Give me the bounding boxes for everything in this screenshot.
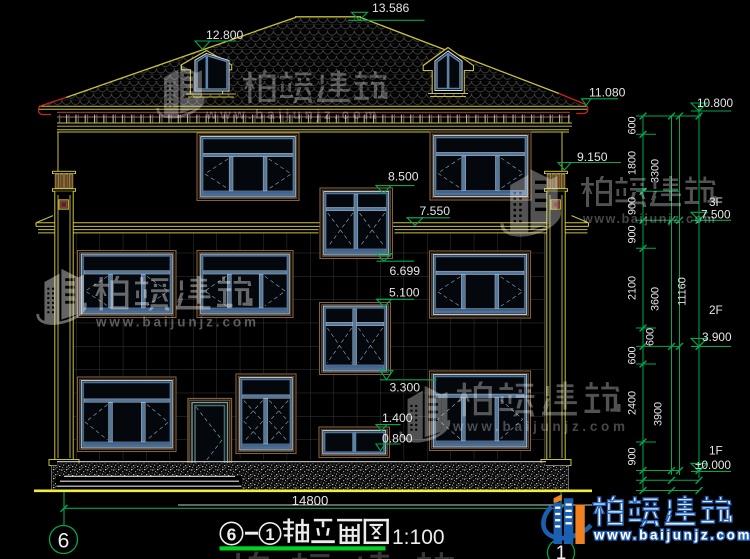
svg-text:6: 6 [227, 525, 237, 545]
svg-text:2400: 2400 [627, 391, 639, 415]
svg-text:900: 900 [627, 447, 639, 465]
svg-text:1: 1 [556, 543, 567, 559]
svg-text:11160: 11160 [677, 277, 689, 305]
svg-text:1: 1 [265, 526, 274, 544]
svg-text:3600: 3600 [650, 287, 662, 311]
svg-text:3.900: 3.900 [702, 330, 732, 344]
svg-text:www.baijunjz.com: www.baijunjz.com [593, 528, 750, 543]
svg-text:8.500: 8.500 [388, 170, 419, 184]
svg-text:9.150: 9.150 [577, 150, 608, 164]
svg-text:www.baijunjz.com: www.baijunjz.com [205, 107, 380, 122]
svg-text:7.550: 7.550 [420, 204, 451, 218]
svg-text:±0.000: ±0.000 [695, 458, 731, 472]
svg-text:3900: 3900 [653, 402, 665, 426]
svg-text:1800: 1800 [627, 151, 639, 175]
svg-text:2F: 2F [709, 303, 723, 317]
svg-text:14800: 14800 [292, 493, 329, 508]
svg-text:5.100: 5.100 [389, 286, 420, 300]
svg-text:www.baijunjz.com: www.baijunjz.com [95, 315, 259, 330]
svg-text:www.baijunjz.com: www.baijunjz.com [452, 419, 629, 434]
svg-text:11.080: 11.080 [589, 86, 626, 100]
svg-text:2100: 2100 [627, 276, 639, 300]
svg-text:6.699: 6.699 [390, 264, 421, 278]
svg-text:600: 600 [627, 346, 639, 364]
svg-text:12.800: 12.800 [206, 28, 243, 42]
svg-text:1:100: 1:100 [392, 526, 445, 549]
svg-text:600: 600 [645, 328, 657, 346]
svg-text:900: 900 [627, 225, 639, 243]
svg-text:3.300: 3.300 [390, 381, 421, 395]
svg-text:3300: 3300 [650, 159, 662, 183]
svg-text:600: 600 [627, 116, 639, 134]
svg-text:13.586: 13.586 [372, 1, 409, 15]
svg-text:www.baijunjz.com: www.baijunjz.com [582, 212, 716, 226]
svg-text:10.800: 10.800 [697, 96, 734, 110]
svg-text:1F: 1F [709, 444, 723, 458]
svg-text:6: 6 [58, 530, 70, 553]
